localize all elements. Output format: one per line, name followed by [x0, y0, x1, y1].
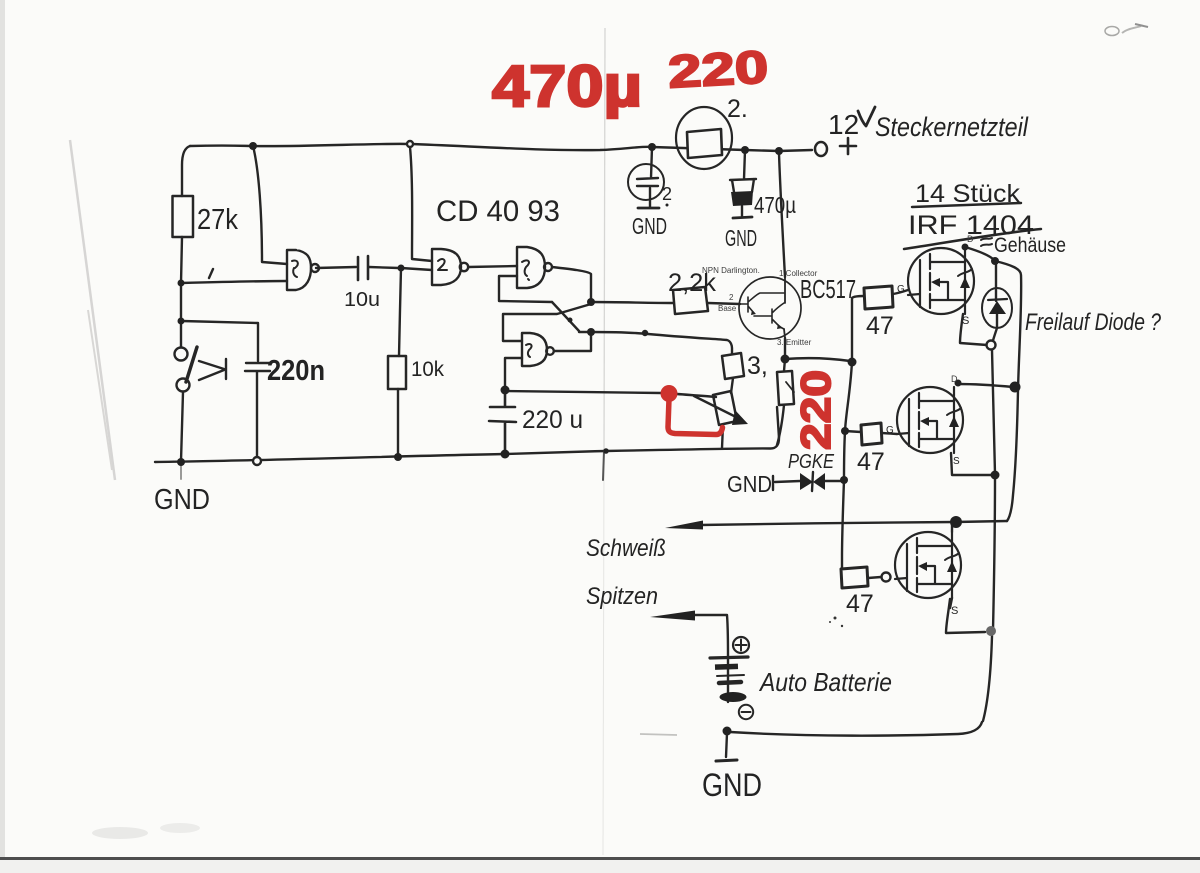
svg-text:S: S: [962, 315, 969, 327]
svg-text:GND: GND: [154, 484, 210, 516]
svg-text:Base: Base: [718, 304, 737, 313]
svg-text:S: S: [953, 456, 960, 467]
svg-text:3,: 3,: [747, 352, 768, 380]
svg-text:D: D: [951, 374, 958, 384]
svg-text:Freilauf Diode ?: Freilauf Diode ?: [1025, 309, 1162, 336]
svg-text:220: 220: [667, 40, 770, 97]
svg-text:470µ: 470µ: [492, 54, 642, 119]
svg-text:10u: 10u: [344, 289, 380, 311]
svg-text:10k: 10k: [411, 358, 444, 381]
svg-text:2: 2: [729, 293, 734, 302]
svg-text:Spitzen: Spitzen: [586, 583, 658, 610]
svg-text:BC517: BC517: [800, 274, 856, 304]
svg-text:D: D: [967, 234, 974, 244]
svg-text:Schweiß: Schweiß: [586, 535, 666, 562]
svg-text:1 Collector: 1 Collector: [779, 269, 818, 278]
svg-text:GND: GND: [727, 471, 772, 497]
svg-text:Auto Batterie: Auto Batterie: [758, 667, 892, 697]
svg-text:NPN Darlington.: NPN Darlington.: [702, 266, 760, 275]
svg-text:47: 47: [846, 590, 874, 618]
svg-text:CD 40 93: CD 40 93: [436, 195, 560, 228]
svg-text:3. Emitter: 3. Emitter: [777, 338, 812, 347]
svg-text:GND: GND: [702, 767, 762, 803]
svg-text:27k: 27k: [197, 204, 238, 236]
svg-text:220: 220: [792, 370, 839, 450]
svg-text:2.: 2.: [727, 95, 748, 123]
svg-text:GND: GND: [725, 225, 757, 251]
svg-text:G: G: [897, 284, 905, 295]
svg-text:12: 12: [828, 109, 859, 140]
svg-text:GND: GND: [632, 213, 667, 239]
svg-text:47: 47: [866, 312, 894, 340]
svg-text:Steckernetzteil: Steckernetzteil: [875, 112, 1029, 142]
svg-text:47: 47: [857, 448, 885, 476]
svg-text:220 u: 220 u: [522, 406, 583, 434]
svg-text:220n: 220n: [267, 355, 325, 387]
svg-text:14 Stück: 14 Stück: [915, 180, 1021, 208]
svg-text:2: 2: [662, 184, 672, 204]
svg-text:Gehäuse: Gehäuse: [994, 234, 1066, 257]
svg-text:PGKE: PGKE: [788, 451, 835, 473]
svg-text:470µ: 470µ: [754, 192, 796, 218]
svg-text:G: G: [886, 425, 894, 436]
svg-text:S: S: [951, 605, 958, 617]
